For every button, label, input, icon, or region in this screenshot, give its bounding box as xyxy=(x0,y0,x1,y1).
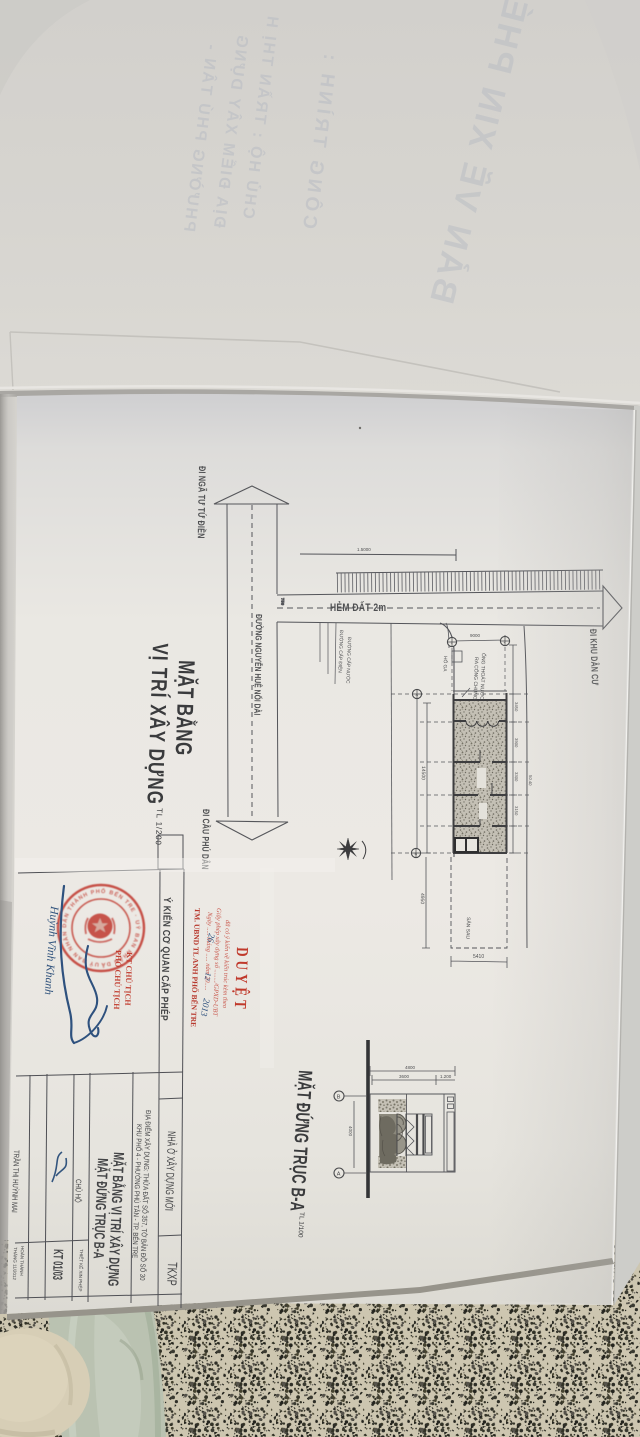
svg-text:4000: 4000 xyxy=(348,1126,353,1137)
svg-text:HẺM ĐẤT 2m: HẺM ĐẤT 2m xyxy=(330,601,386,614)
svg-text:1.5000: 1.5000 xyxy=(357,547,371,552)
svg-text:9000: 9000 xyxy=(470,633,481,638)
svg-text:PHÓ CHỦ TỊCH: PHÓ CHỦ TỊCH xyxy=(112,950,124,1011)
svg-text:B: B xyxy=(415,851,418,856)
svg-text:B: B xyxy=(337,1095,341,1101)
svg-text:KT CHỦ TỊCH: KT CHỦ TỊCH xyxy=(123,952,135,1007)
svg-text:750: 750 xyxy=(280,598,284,606)
svg-text:14500: 14500 xyxy=(420,766,426,780)
svg-text:A: A xyxy=(337,1172,341,1178)
svg-text:3600: 3600 xyxy=(399,1074,410,1079)
svg-text:NHÀ Ở XÂY DỰNG MỚI: NHÀ Ở XÂY DỰNG MỚI xyxy=(163,1131,179,1211)
svg-text:4800: 4800 xyxy=(405,1065,416,1070)
svg-text:TL 1/200: TL 1/200 xyxy=(154,808,164,846)
svg-text:DUYỆT: DUYỆT xyxy=(230,947,251,1013)
svg-text:THÁNG 11/2012: THÁNG 11/2012 xyxy=(12,1247,19,1281)
svg-text:SÂN SAU: SÂN SAU xyxy=(464,917,472,940)
svg-text:HOÀN THÀNH: HOÀN THÀNH xyxy=(19,1246,26,1276)
svg-text:12: 12 xyxy=(203,972,213,981)
svg-text:4950: 4950 xyxy=(419,893,425,904)
svg-text:TKXP: TKXP xyxy=(164,1262,179,1286)
svg-text:1.200: 1.200 xyxy=(440,1074,452,1079)
svg-text:KT 01/03: KT 01/03 xyxy=(49,1249,65,1280)
svg-text:5410: 5410 xyxy=(473,954,484,960)
svg-text:A: A xyxy=(416,692,419,697)
